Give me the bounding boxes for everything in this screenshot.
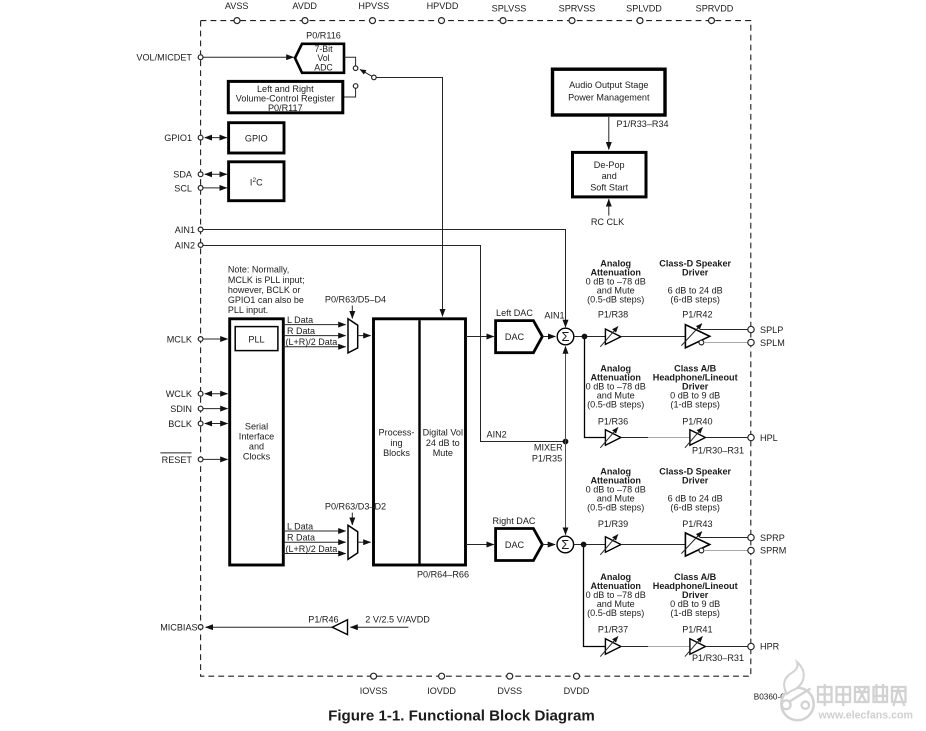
svg-text:AIN1: AIN1	[544, 311, 564, 321]
svg-text:SPLM: SPLM	[760, 338, 785, 348]
svg-text:P1/R42: P1/R42	[682, 310, 712, 320]
svg-text:HPR: HPR	[760, 642, 780, 652]
svg-text:SDA: SDA	[173, 170, 193, 180]
svg-text:SPLVDD: SPLVDD	[626, 4, 662, 14]
svg-text:BCLK: BCLK	[168, 419, 192, 429]
svg-text:AIN2: AIN2	[487, 429, 507, 439]
svg-text:IOVSS: IOVSS	[360, 686, 388, 696]
svg-text:IOVDD: IOVDD	[427, 686, 456, 696]
svg-text:6 dB to 24 dB(6-dB steps): 6 dB to 24 dB(6-dB steps)	[668, 494, 723, 513]
svg-text:P1/R33–R34: P1/R33–R34	[617, 119, 669, 129]
svg-text:P1/R30–R31: P1/R30–R31	[692, 445, 744, 455]
svg-text:P0/R116: P0/R116	[306, 31, 341, 41]
svg-text:L Data: L Data	[287, 521, 313, 531]
svg-text:SPLVSS: SPLVSS	[492, 4, 527, 14]
svg-text:P1/R46: P1/R46	[308, 614, 338, 624]
svg-text:RESET: RESET	[162, 455, 193, 465]
svg-text:P1/R35: P1/R35	[532, 454, 562, 464]
svg-text:HPL: HPL	[760, 433, 778, 443]
svg-text:SPRP: SPRP	[760, 533, 785, 543]
svg-text:GPIO: GPIO	[245, 134, 268, 144]
svg-text:VOL/MICDET: VOL/MICDET	[136, 53, 192, 63]
svg-text:P1/R41: P1/R41	[682, 625, 712, 635]
svg-text:P1/R36: P1/R36	[598, 417, 628, 427]
svg-text:L Data: L Data	[287, 315, 313, 325]
svg-text:www.elecfans.com: www.elecfans.com	[818, 710, 913, 722]
svg-text:I2C: I2C	[250, 177, 263, 188]
svg-text:DAC: DAC	[505, 540, 525, 550]
svg-text:DVDD: DVDD	[564, 686, 590, 696]
svg-text:DAC: DAC	[505, 332, 525, 342]
svg-text:SPLP: SPLP	[760, 325, 783, 335]
svg-text:Σ: Σ	[561, 537, 569, 552]
svg-text:HPVDD: HPVDD	[427, 1, 459, 11]
svg-text:P0/R63/D5–D4: P0/R63/D5–D4	[325, 295, 386, 305]
svg-text:(L+R)/2 Data: (L+R)/2 Data	[286, 544, 338, 554]
svg-text:AVSS: AVSS	[225, 1, 249, 11]
svg-text:Figure 1-1. Functional Block D: Figure 1-1. Functional Block Diagram	[328, 708, 595, 725]
svg-text:P0/R63/D3–D2: P0/R63/D3–D2	[325, 502, 386, 512]
svg-text:Σ: Σ	[561, 329, 569, 344]
svg-text:MICBIAS: MICBIAS	[160, 622, 197, 632]
svg-text:WCLK: WCLK	[166, 389, 192, 399]
svg-text:GPIO1: GPIO1	[164, 133, 192, 143]
svg-text:P0/R64–R66: P0/R64–R66	[417, 570, 469, 580]
svg-text:Left DAC: Left DAC	[496, 308, 533, 318]
svg-text:DVSS: DVSS	[497, 686, 522, 696]
svg-text:SPRVDD: SPRVDD	[696, 4, 734, 14]
svg-text:AVDD: AVDD	[292, 1, 317, 11]
svg-text:0 dB to 9 dB(1-dB steps): 0 dB to 9 dB(1-dB steps)	[670, 391, 720, 410]
svg-text:P1/R30–R31: P1/R30–R31	[692, 653, 744, 663]
svg-text:0 dB to 9 dB(1-dB steps): 0 dB to 9 dB(1-dB steps)	[670, 599, 720, 618]
svg-text:SDIN: SDIN	[170, 404, 192, 414]
svg-text:Right DAC: Right DAC	[493, 516, 536, 526]
svg-text:P1/R38: P1/R38	[598, 310, 628, 320]
svg-text:RC CLK: RC CLK	[591, 217, 624, 227]
svg-text:AIN2: AIN2	[175, 240, 195, 250]
svg-text:AIN1: AIN1	[175, 225, 195, 235]
svg-text:P1/R39: P1/R39	[598, 519, 628, 529]
svg-text:HPVSS: HPVSS	[358, 1, 389, 11]
svg-text:MIXER: MIXER	[534, 443, 563, 453]
svg-text:PLL: PLL	[248, 334, 264, 344]
svg-text:R Data: R Data	[287, 326, 315, 336]
svg-text:SPRM: SPRM	[760, 546, 786, 556]
svg-text:SPRVSS: SPRVSS	[559, 4, 596, 14]
svg-text:P1/R43: P1/R43	[682, 519, 712, 529]
svg-text:(L+R)/2 Data: (L+R)/2 Data	[286, 337, 338, 347]
svg-text:SCL: SCL	[174, 183, 192, 193]
svg-text:2 V/2.5 V/AVDD: 2 V/2.5 V/AVDD	[365, 614, 430, 624]
svg-text:P1/R37: P1/R37	[598, 625, 628, 635]
svg-text:R Data: R Data	[287, 533, 315, 543]
svg-text:MCLK: MCLK	[167, 334, 192, 344]
svg-text:P1/R40: P1/R40	[682, 417, 712, 427]
svg-text:6 dB to 24 dB(6-dB steps): 6 dB to 24 dB(6-dB steps)	[668, 286, 723, 305]
